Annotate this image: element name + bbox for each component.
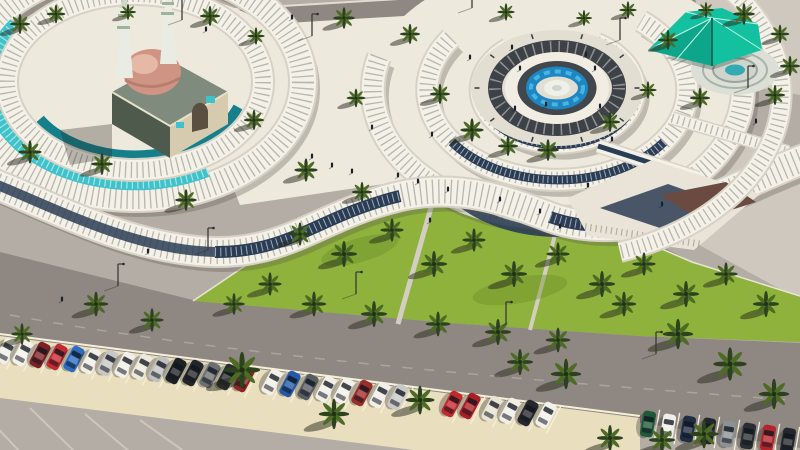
fountain-bench	[635, 87, 640, 89]
aerial-render: Aerial 3D architectural rendering of a m…	[0, 0, 800, 450]
scene-svg	[0, 0, 800, 450]
fountain-bench	[475, 87, 480, 89]
mosque-window	[206, 96, 215, 103]
mosque-window	[176, 122, 184, 128]
mosque-arch-door	[192, 103, 208, 132]
